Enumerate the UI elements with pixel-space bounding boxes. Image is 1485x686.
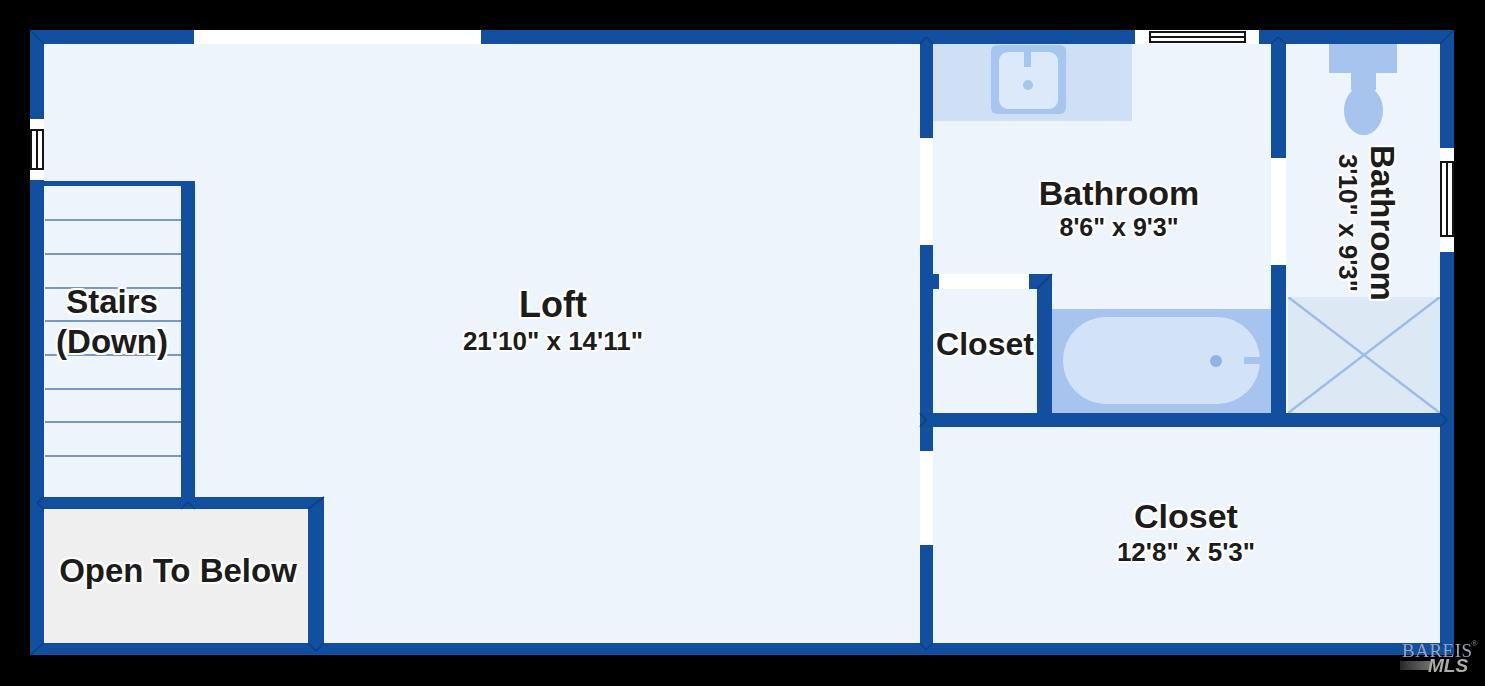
svg-text:®: ®	[1471, 638, 1478, 648]
svg-text:MLS: MLS	[1428, 655, 1468, 676]
